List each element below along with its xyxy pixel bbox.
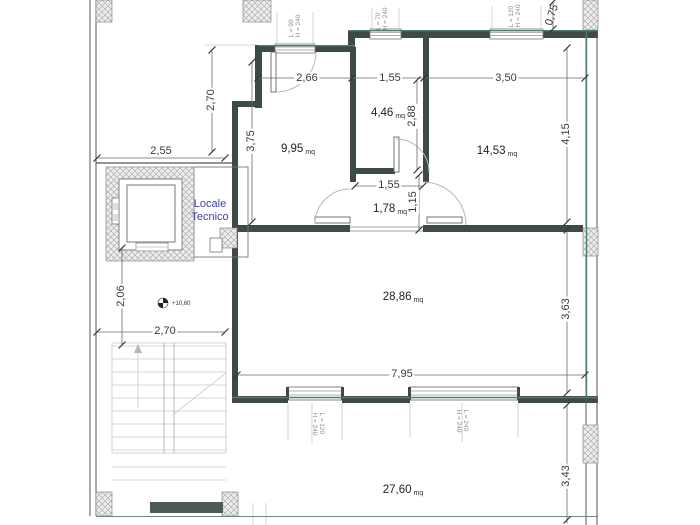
opening-size-label: L = 70 H = 240 xyxy=(375,8,389,31)
dimension-label: 3,50 xyxy=(493,72,518,84)
room-area-label: 28,86mq xyxy=(383,291,424,303)
walls-layer xyxy=(232,30,598,403)
room-area-label: 9,95mq xyxy=(281,143,315,155)
room-area-label: 14,53mq xyxy=(477,145,518,157)
dimension-label: 1,55 xyxy=(377,72,402,84)
technical-room-label: Locale Tecnico xyxy=(191,198,228,224)
exterior-accent-lines xyxy=(96,31,598,517)
dimension-label: 2,70 xyxy=(205,87,217,112)
stair-direction-arrowhead xyxy=(134,344,142,353)
structure-lines xyxy=(90,0,597,525)
hatched-columns xyxy=(96,0,598,516)
dimension-label: 2,88 xyxy=(406,103,418,128)
dimension-label: 3,63 xyxy=(560,296,572,321)
level-marker-label: +10,60 xyxy=(172,301,191,307)
dimension-label: 2,06 xyxy=(115,283,127,308)
opening-size-label: L = 120 H = 240 xyxy=(508,5,522,28)
dimension-label: 1,15 xyxy=(407,189,419,214)
floor-plan-drawing xyxy=(0,0,700,525)
stairs-and-faint-lines xyxy=(112,6,541,525)
room-area-label: 1,78mq xyxy=(373,203,407,215)
floor-plan: 2,70 2,55 3,75 2,66 1,55 3,50 2,88 4,15 … xyxy=(0,0,700,525)
dimension-label: 3,43 xyxy=(560,463,572,488)
dimension-label: 7,95 xyxy=(389,368,414,380)
dimension-label: 3,75 xyxy=(245,128,257,153)
wall-section-block xyxy=(150,502,223,513)
dimension-label: 2,70 xyxy=(152,325,177,337)
room-area-label: 27,60mq xyxy=(383,484,424,496)
dimension-label: 4,15 xyxy=(560,121,572,146)
elevator-cabin xyxy=(127,185,175,242)
opening-size-label: L = 240 H = 240 xyxy=(455,410,469,433)
dimension-label: 2,55 xyxy=(148,145,173,157)
opening-size-label: L = 120 H = 240 xyxy=(311,413,325,436)
opening-size-label: L = 90 H = 240 xyxy=(288,15,302,38)
room-area-label: 4,46mq xyxy=(371,107,405,119)
dimension-label: 2,66 xyxy=(294,72,319,84)
dimension-label: 1,55 xyxy=(376,179,401,191)
level-marker-icon xyxy=(158,298,168,308)
